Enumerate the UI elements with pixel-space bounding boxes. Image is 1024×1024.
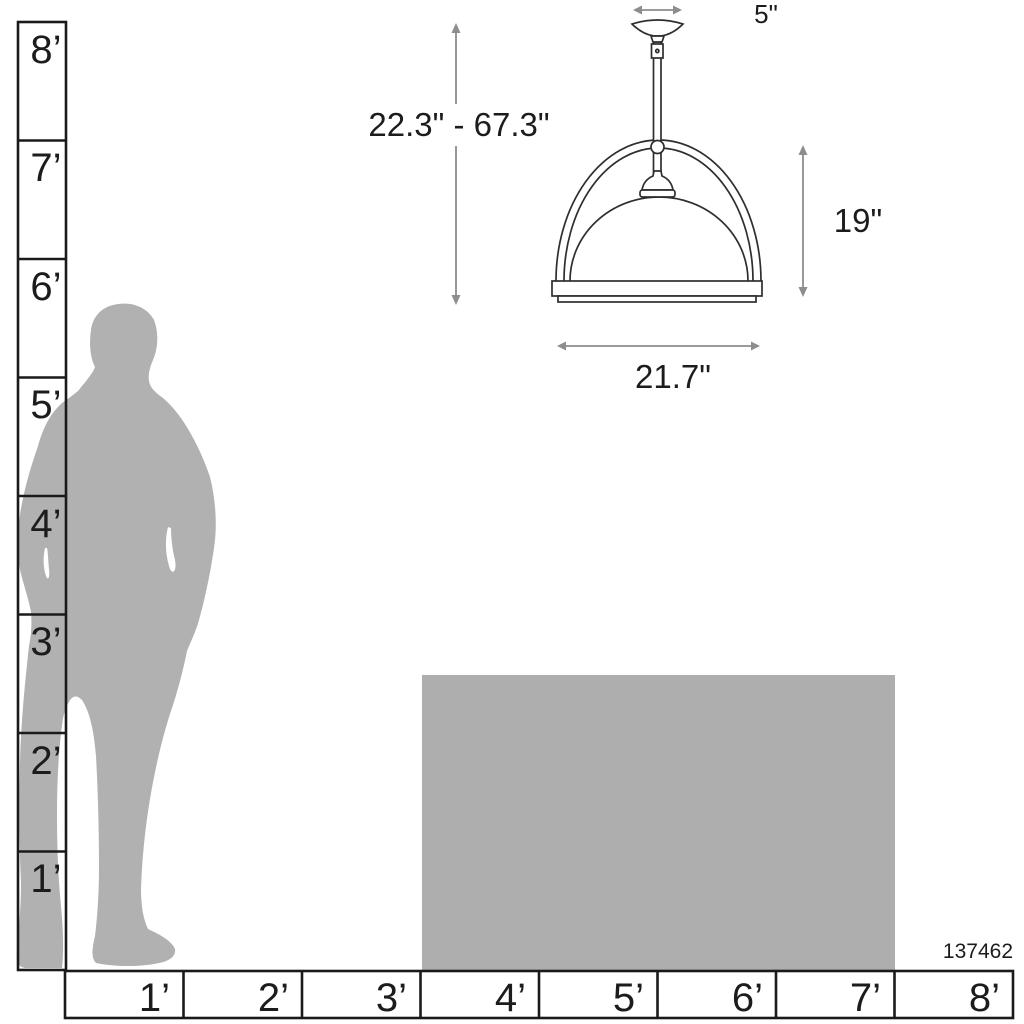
horizontal-ruler-label-6ft: 6’ — [732, 976, 763, 1020]
size-diagram-canvas: 8’ 7’ 6’ 5’ 4’ 3’ 2’ 1’ 1’ 2’ 3’ 4’ 5’ 6… — [0, 0, 1024, 1024]
vertical-ruler-label-5ft: 5’ — [30, 383, 61, 427]
vertical-ruler-label-7ft: 7’ — [30, 146, 61, 190]
arrow-head-down-icon — [799, 287, 808, 297]
fixture-width-label: 21.7" — [635, 358, 711, 395]
vertical-ruler-label-1ft: 1’ — [30, 857, 61, 901]
product-id-label: 137462 — [943, 940, 1013, 963]
horizontal-ruler-label-5ft: 5’ — [613, 976, 644, 1020]
horizontal-ruler-label-4ft: 4’ — [495, 976, 526, 1020]
size-diagram-page: 8’ 7’ 6’ 5’ 4’ 3’ 2’ 1’ 1’ 2’ 3’ 4’ 5’ 6… — [0, 0, 1024, 1024]
horizontal-ruler-label-7ft: 7’ — [850, 976, 881, 1020]
horizontal-ruler: 1’ 2’ 3’ 4’ 5’ 6’ 7’ 8’ — [65, 971, 1013, 1020]
horizontal-ruler-label-3ft: 3’ — [376, 976, 407, 1020]
pendant-dome-shade — [570, 197, 748, 281]
vertical-ruler-label-4ft: 4’ — [30, 502, 61, 546]
vertical-ruler-label-8ft: 8’ — [30, 28, 61, 72]
vertical-ruler-label-6ft: 6’ — [30, 265, 61, 309]
canopy-width-label: 5" — [754, 0, 778, 29]
height-range-label: 22.3" - 67.3" — [368, 106, 549, 143]
table-reference-shape — [422, 675, 895, 971]
pendant-ball-joint — [651, 141, 664, 154]
arrow-head-left-icon — [557, 342, 566, 351]
horizontal-ruler-label-2ft: 2’ — [258, 976, 289, 1020]
arrow-head-up-icon — [452, 23, 461, 33]
pendant-socket-base — [640, 190, 675, 197]
horizontal-ruler-label-1ft: 1’ — [139, 976, 170, 1020]
pendant-light-drawing — [552, 20, 762, 302]
pendant-socket-bell — [642, 171, 673, 190]
vertical-ruler-label-3ft: 3’ — [30, 620, 61, 664]
pendant-canopy — [632, 20, 683, 36]
pendant-rod-connector — [652, 44, 664, 58]
pendant-canopy-collar — [651, 36, 664, 42]
arrow-head-left-icon — [633, 6, 642, 15]
fixture-height-label: 19" — [834, 202, 882, 239]
arrow-head-right-icon — [673, 6, 682, 15]
arrow-head-down-icon — [452, 295, 461, 305]
pendant-bottom-rail — [552, 281, 762, 296]
pendant-rail-lip — [558, 296, 756, 302]
horizontal-ruler-label-8ft: 8’ — [969, 976, 1000, 1020]
arrow-head-right-icon — [751, 342, 760, 351]
dimension-annotations: 5" 22.3" - 67.3" 19" 21.7" — [368, 0, 882, 395]
arrow-head-up-icon — [799, 145, 808, 155]
vertical-ruler-label-2ft: 2’ — [30, 739, 61, 783]
